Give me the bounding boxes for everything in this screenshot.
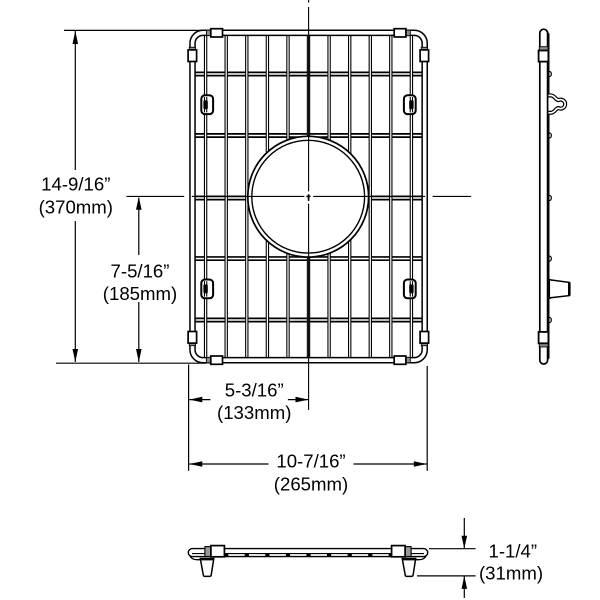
svg-text:1-1/4”: 1-1/4” [489, 540, 538, 561]
svg-text:(133mm): (133mm) [217, 402, 291, 423]
svg-text:(265mm): (265mm) [274, 473, 348, 494]
svg-text:(185mm): (185mm) [103, 283, 177, 304]
svg-text:(370mm): (370mm) [39, 197, 113, 218]
svg-text:10-7/16”: 10-7/16” [276, 450, 345, 471]
svg-text:7-5/16”: 7-5/16” [111, 260, 170, 281]
svg-text:14-9/16”: 14-9/16” [41, 173, 110, 194]
svg-text:5-3/16”: 5-3/16” [225, 379, 284, 400]
svg-text:(31mm): (31mm) [479, 563, 543, 584]
